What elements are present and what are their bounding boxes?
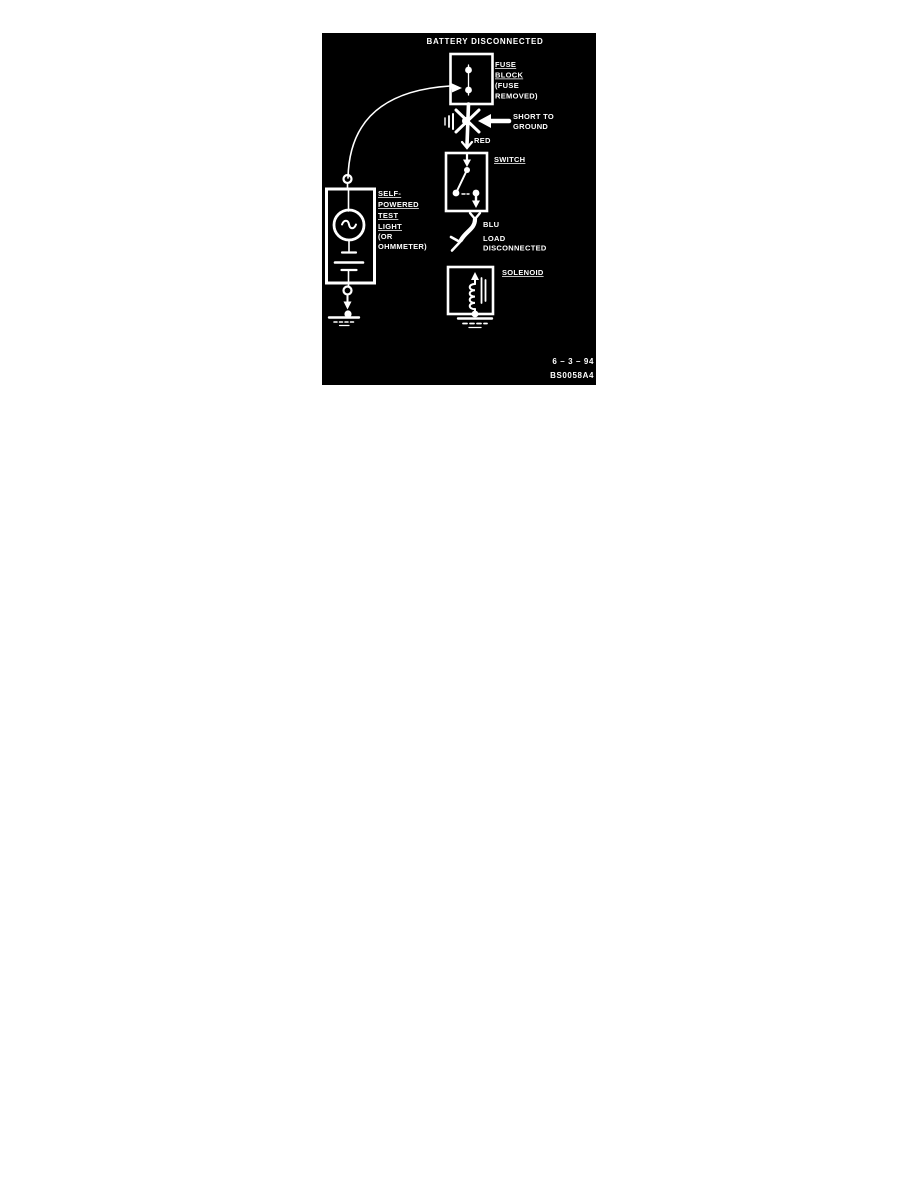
arrow-left-icon [478,114,491,128]
short-point-dot [462,117,470,125]
battery-icon [335,253,363,271]
test-light-label-line6: OHMMETER) [378,242,427,251]
load-label-line1: LOAD [483,234,506,243]
arrow-down-icon [344,302,352,310]
short-to-ground-pointer [478,114,509,128]
switch-label: SWITCH [494,155,525,164]
switch-symbol [446,142,487,211]
test-light-label: SELF- POWERED TEST LIGHT (OR OHMMETER) [378,189,427,251]
coil-icon [470,284,475,309]
test-light-label-line2: POWERED [378,200,419,209]
wiring-diagram-panel: BATTERY DISCONNECTED FUSE BLOCK (FUSE RE… [322,33,596,385]
short-to-ground-line1: SHORT TO [513,112,554,121]
solenoid-symbol [448,267,493,328]
fuse-block-symbol [451,54,493,104]
document-page: BATTERY DISCONNECTED FUSE BLOCK (FUSE RE… [0,0,918,1188]
jumper-wire-curve [348,86,450,178]
ground-icon [458,319,492,328]
fuse-block-label-line4: REMOVED) [495,92,538,101]
probe-ring-terminal [344,287,352,295]
figure-id: BS0058A4 [550,371,594,380]
load-wire-symbol [451,213,480,251]
fuse-block-box [451,54,493,104]
fuse-terminal-bottom [465,87,472,94]
arrow-down-icon [463,160,471,168]
filament-icon [342,221,356,229]
test-light-label-line4: LIGHT [378,222,402,231]
load-disconnected-label: LOAD DISCONNECTED [483,234,547,253]
wiring-diagram-svg: BATTERY DISCONNECTED FUSE BLOCK (FUSE RE… [322,33,596,385]
test-light-symbol [327,175,375,326]
switch-blade [456,170,467,193]
figure-footer: 6 – 3 – 94 BS0058A4 [550,357,594,380]
fuse-block-label-line1: FUSE [495,60,516,69]
short-to-ground-label: SHORT TO GROUND [513,112,554,131]
solenoid-ground-dot [472,311,479,318]
wire-label-red: RED [474,136,491,145]
short-to-ground-line2: GROUND [513,122,548,131]
switch-terminal [453,190,460,197]
solenoid-label: SOLENOID [502,268,544,277]
wire-label-blu: BLU [483,220,499,229]
arrow-down-icon [472,201,480,209]
ground-icon [329,318,359,326]
arrow-up-icon [471,272,479,280]
fuse-block-label: FUSE BLOCK (FUSE REMOVED) [495,60,538,101]
test-light-label-line3: TEST [378,211,398,220]
fuse-block-label-line3: (FUSE [495,81,519,90]
disconnected-fork-icon [451,237,460,251]
figure-date: 6 – 3 – 94 [552,357,594,366]
test-light-label-line5: (OR [378,232,393,241]
load-label-line2: DISCONNECTED [483,244,547,253]
fuse-terminal-top [465,67,472,74]
fuse-block-label-line2: BLOCK [495,71,523,80]
blu-wire-curve [461,219,475,240]
test-light-label-line1: SELF- [378,189,401,198]
diagram-title: BATTERY DISCONNECTED [427,37,544,46]
arrow-right-icon [451,83,462,93]
